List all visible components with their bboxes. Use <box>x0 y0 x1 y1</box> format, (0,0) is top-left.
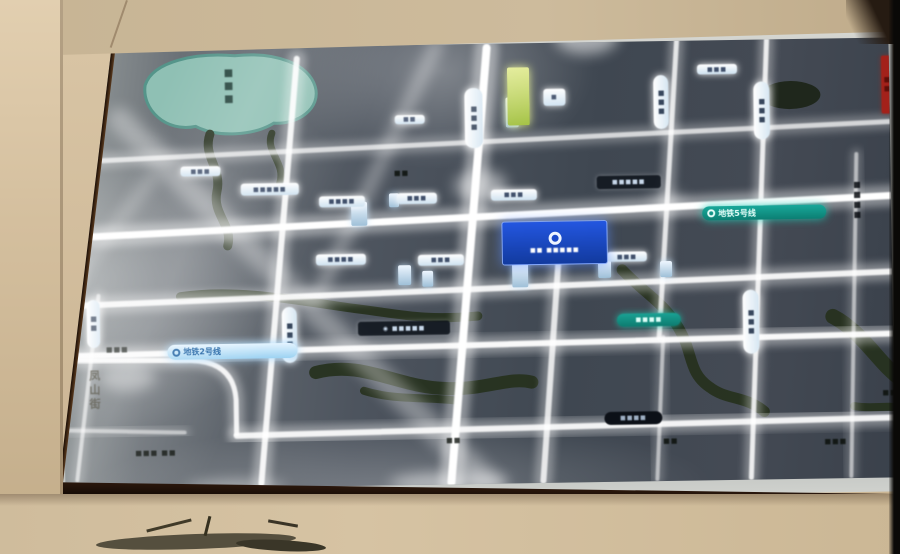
map-label-dashes: ■■■ ■■ <box>123 447 189 460</box>
metro-icon <box>172 348 180 356</box>
map-label-dark: ◉ ■■■■■ <box>358 320 450 335</box>
metro-icon <box>707 209 715 217</box>
sketch-twig <box>146 518 191 532</box>
map-label-vcap: ■■■ <box>753 81 770 139</box>
map-label-dashes: ■■ <box>653 437 689 447</box>
project-logo-icon <box>548 232 561 245</box>
map-label-dashes: ■■ <box>389 169 415 177</box>
map-label-blackcap: ■■■■ <box>604 411 662 425</box>
wall-left-of-frame <box>0 0 63 554</box>
map-label-vcap: ■■■ <box>464 88 483 148</box>
photo-right-dark-edge <box>889 0 900 554</box>
building-icon <box>507 67 530 125</box>
map-label-glow: ■■■ <box>397 193 437 205</box>
metro-line-5-badge: 地铁5号线 <box>702 205 826 221</box>
sketch-twig <box>268 519 298 527</box>
wall-plant-sketch <box>86 520 356 554</box>
map-label-glow: ■■■■■ <box>241 183 299 196</box>
building-icon <box>398 265 411 285</box>
building-icon <box>660 261 672 277</box>
photo-of-illuminated-map-display: 地铁2号线 地铁5号线 ■■ ■■■■■ 凤山街 ■■■ ■■■■■■■■■■■… <box>0 0 900 554</box>
metro-line-2-badge: 地铁2号线 <box>167 343 297 360</box>
map-label-dashes: ■■■ <box>811 436 861 447</box>
street-name-vertical-label: 凤山街 <box>86 370 103 412</box>
map-label-glow: ■■■ <box>491 189 537 201</box>
building-icon <box>512 263 528 287</box>
map-label-glow: ■■■■ <box>316 254 366 266</box>
map-label-glow: ■■ <box>395 115 425 124</box>
map-label-vcap: ■■■ <box>742 290 759 354</box>
map-label-glow: ■ <box>543 89 565 106</box>
map-label-vcap: ■■■ <box>653 75 669 129</box>
metro-line-2-label: 地铁2号线 <box>183 346 221 358</box>
map-label-dark: ■■■■■ <box>597 175 661 189</box>
map-label-glow: ■■■ <box>607 251 647 262</box>
area-map-panel: 地铁2号线 地铁5号线 ■■ ■■■■■ 凤山街 ■■■ ■■■■■■■■■■■… <box>59 38 896 491</box>
map-label-dashes: ■■ <box>433 436 475 446</box>
top-right-shadow <box>846 0 894 44</box>
map-label-glow: ■■■ <box>418 254 464 266</box>
map-label-glow: ■■■ <box>180 166 220 177</box>
map-label-glow: ■■■■ <box>319 196 365 208</box>
metro-line-5-label: 地铁5号线 <box>718 207 756 219</box>
map-label-tealcap: ■■■■ <box>617 313 681 327</box>
map-label-vdark: ■■■■ <box>848 160 864 240</box>
project-location-badge: ■■ ■■■■■ <box>501 220 608 266</box>
map-label-glow: ■■■ <box>697 64 737 75</box>
building-icon <box>422 271 433 287</box>
river <box>316 366 532 391</box>
map-label-vcap: ■■ <box>87 300 101 348</box>
sketch-blob <box>236 538 326 554</box>
map-label-dashes: ■■■ <box>96 344 138 355</box>
lake-name-label: ■■■ <box>223 68 235 107</box>
project-logo-text: ■■ ■■■■■ <box>530 246 580 254</box>
